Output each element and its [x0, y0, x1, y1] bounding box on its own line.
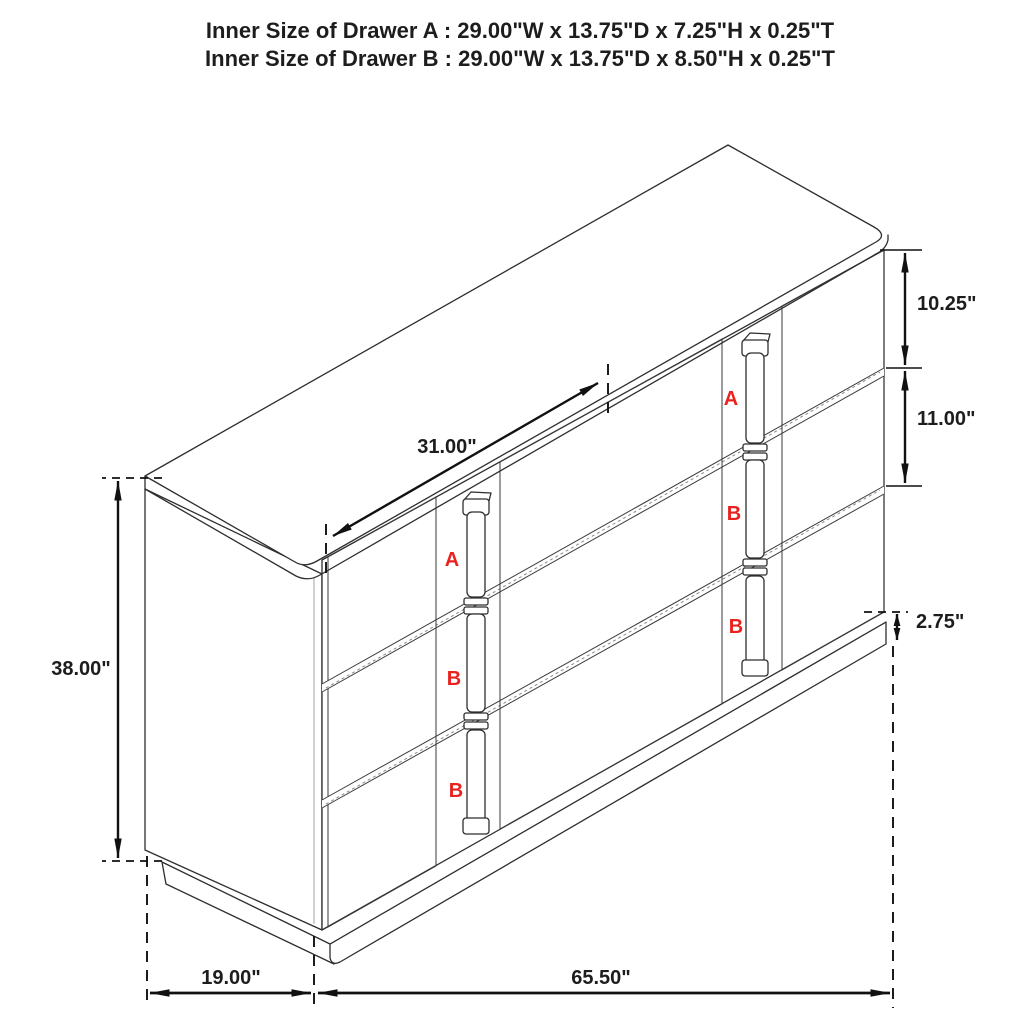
dim-label-65-50: 65.50" [571, 967, 631, 989]
dim-label-10-25: 10.25" [917, 293, 977, 315]
dim-label-2-75: 2.75" [916, 611, 964, 633]
dresser-illustration: A B B A B B [145, 145, 888, 964]
dim-label-11: 11.00" [917, 408, 975, 430]
title-block: Inner Size of Drawer A : 29.00"W x 13.75… [205, 18, 835, 71]
dim-label-31: 31.00" [417, 436, 477, 458]
dim-middle-drawer-height: 11.00" [886, 371, 975, 486]
label-drawer-b2-left: B [449, 780, 463, 802]
dim-label-38: 38.00" [51, 658, 111, 680]
dresser-dimension-diagram: Inner Size of Drawer A : 29.00"W x 13.75… [0, 0, 1024, 1024]
dim-top-drawer-height: 10.25" [880, 250, 977, 368]
title-line-drawer-b: Inner Size of Drawer B : 29.00"W x 13.75… [205, 46, 835, 71]
label-drawer-b1-left: B [447, 668, 461, 690]
label-drawer-a-right: A [724, 388, 738, 410]
title-line-drawer-a: Inner Size of Drawer A : 29.00"W x 13.75… [206, 18, 835, 43]
label-drawer-a-left: A [445, 549, 459, 571]
dim-label-19: 19.00" [201, 967, 261, 989]
label-drawer-b1-right: B [727, 503, 741, 525]
dimension-diagram-page: Inner Size of Drawer A : 29.00"W x 13.75… [0, 0, 1024, 1024]
label-drawer-b2-right: B [729, 616, 743, 638]
